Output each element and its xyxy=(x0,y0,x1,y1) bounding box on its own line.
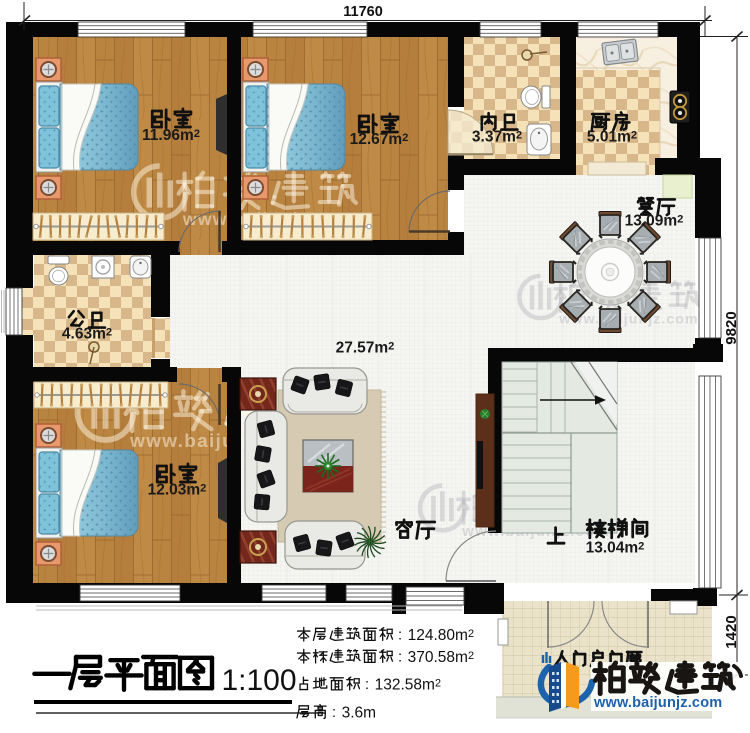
svg-text:1420: 1420 xyxy=(723,615,740,648)
svg-text::: : xyxy=(398,650,402,666)
svg-text:13.09m2: 13.09m2 xyxy=(625,212,684,229)
svg-text:27.57m2: 27.57m2 xyxy=(336,339,395,356)
svg-text:4.63m2: 4.63m2 xyxy=(62,325,112,342)
svg-text:www.baijunjz.com: www.baijunjz.com xyxy=(593,695,722,711)
svg-text:9820: 9820 xyxy=(723,311,740,344)
svg-text:12.67m2: 12.67m2 xyxy=(350,131,409,148)
svg-text:11760: 11760 xyxy=(343,4,383,20)
svg-text:124.80m2: 124.80m2 xyxy=(408,627,474,644)
svg-text:5.01m2: 5.01m2 xyxy=(587,128,637,145)
svg-text:132.58m2: 132.58m2 xyxy=(375,677,441,694)
svg-text::: : xyxy=(332,705,336,721)
svg-text::: : xyxy=(398,628,402,644)
svg-text:3.37m2: 3.37m2 xyxy=(472,128,522,145)
svg-text::: : xyxy=(365,677,369,693)
svg-text:3.6m: 3.6m xyxy=(342,705,376,722)
svg-text:12.03m2: 12.03m2 xyxy=(148,481,207,498)
svg-text:370.58m2: 370.58m2 xyxy=(408,649,474,666)
svg-text:11.96m2: 11.96m2 xyxy=(142,127,200,144)
svg-text:1:100: 1:100 xyxy=(221,664,296,697)
svg-text:13.04m2: 13.04m2 xyxy=(586,539,645,556)
